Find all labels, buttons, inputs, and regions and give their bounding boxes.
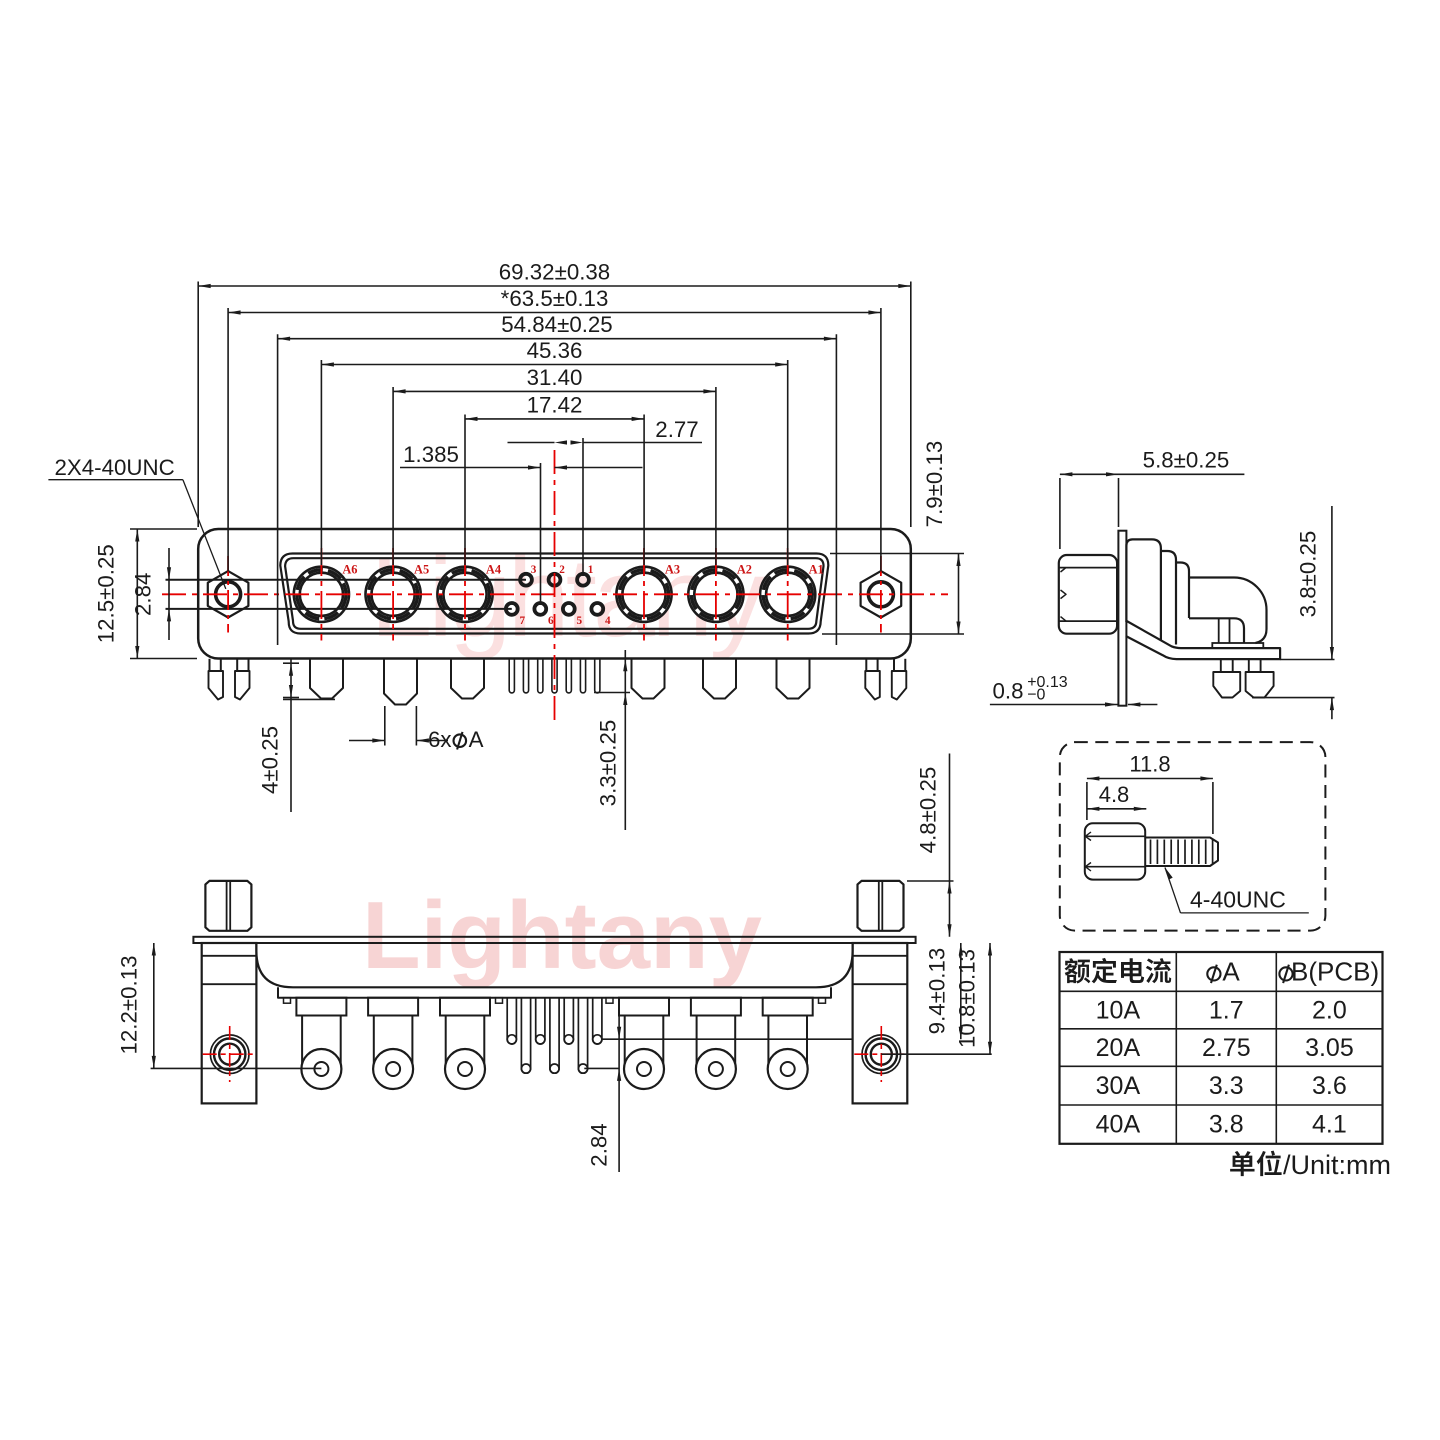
svg-text:11.8: 11.8 [1129, 752, 1170, 777]
svg-text:3.8: 3.8 [1209, 1111, 1244, 1139]
svg-text:6: 6 [548, 615, 554, 627]
svg-text:3: 3 [531, 564, 537, 576]
svg-text:69.32±0.38: 69.32±0.38 [499, 260, 610, 285]
svg-text:4.8: 4.8 [1099, 782, 1130, 807]
svg-text:9.4±0.13: 9.4±0.13 [925, 948, 950, 1035]
svg-text:1: 1 [588, 564, 594, 576]
svg-text:2X4-40UNC: 2X4-40UNC [55, 455, 175, 480]
svg-text:A: A [469, 727, 484, 752]
svg-text:5.8±0.25: 5.8±0.25 [1143, 448, 1230, 473]
svg-text:17.42: 17.42 [527, 393, 583, 418]
svg-text:2.84: 2.84 [131, 573, 156, 616]
svg-text:3.3±0.25: 3.3±0.25 [596, 720, 621, 807]
svg-text:5: 5 [577, 615, 583, 627]
svg-text:54.84±0.25: 54.84±0.25 [501, 312, 612, 337]
svg-text:12.2±0.13: 12.2±0.13 [117, 955, 142, 1054]
svg-text:2.0: 2.0 [1312, 997, 1347, 1025]
svg-text:1.385: 1.385 [403, 442, 459, 467]
svg-text:10.8±0.13: 10.8±0.13 [955, 949, 980, 1048]
svg-text:3.05: 3.05 [1305, 1034, 1354, 1062]
svg-text:3.6: 3.6 [1312, 1072, 1347, 1100]
svg-text:6x: 6x [428, 727, 452, 752]
svg-text:7: 7 [520, 615, 526, 627]
svg-text:4.1: 4.1 [1312, 1111, 1347, 1139]
svg-text:4-40UNC: 4-40UNC [1190, 887, 1286, 913]
svg-text:B(PCB): B(PCB) [1291, 957, 1379, 987]
svg-text:A4: A4 [486, 563, 501, 577]
svg-text:A: A [1222, 957, 1240, 987]
svg-text:A6: A6 [342, 563, 357, 577]
svg-text:A5: A5 [414, 563, 429, 577]
svg-text:4±0.25: 4±0.25 [258, 726, 283, 794]
svg-text:−0: −0 [1027, 687, 1045, 704]
svg-text:*63.5±0.13: *63.5±0.13 [501, 286, 609, 311]
svg-text:7.9±0.13: 7.9±0.13 [922, 441, 947, 528]
svg-text:Lightany: Lightany [362, 882, 762, 989]
svg-text:20A: 20A [1096, 1034, 1141, 1062]
svg-text:A3: A3 [665, 563, 680, 577]
svg-text:12.5±0.25: 12.5±0.25 [94, 544, 119, 643]
svg-text:A2: A2 [737, 563, 752, 577]
svg-text:2.84: 2.84 [587, 1123, 612, 1166]
svg-text:1.7: 1.7 [1209, 997, 1244, 1025]
svg-text:10A: 10A [1096, 997, 1141, 1025]
svg-text:3.3: 3.3 [1209, 1072, 1244, 1100]
svg-text:0.8: 0.8 [993, 678, 1024, 703]
svg-text:2: 2 [559, 564, 565, 576]
svg-text:2.77: 2.77 [655, 417, 698, 442]
svg-text:4: 4 [605, 615, 611, 627]
svg-text:30A: 30A [1096, 1072, 1141, 1100]
svg-text:/Unit:mm: /Unit:mm [1283, 1150, 1391, 1180]
svg-text:40A: 40A [1096, 1111, 1141, 1139]
svg-text:A1: A1 [809, 563, 824, 577]
svg-text:3.8±0.25: 3.8±0.25 [1296, 531, 1321, 618]
svg-text:4.8±0.25: 4.8±0.25 [916, 767, 941, 854]
svg-text:45.36: 45.36 [527, 338, 583, 363]
svg-text:2.75: 2.75 [1202, 1034, 1251, 1062]
svg-text:31.40: 31.40 [527, 365, 583, 390]
